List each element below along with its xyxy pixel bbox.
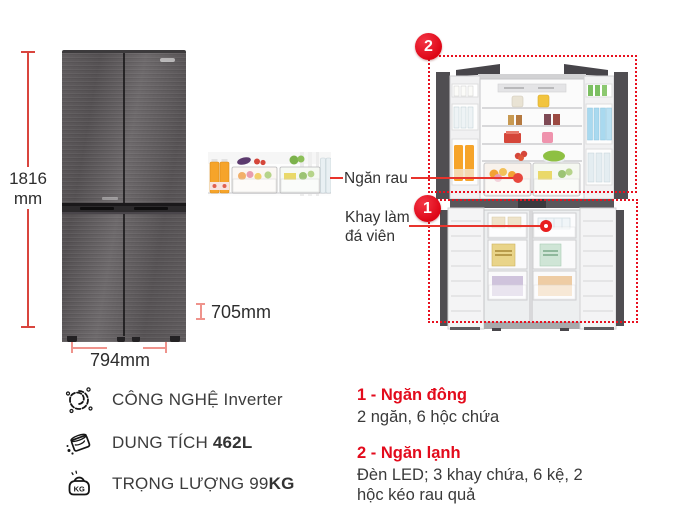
width-dimension-label: 794mm xyxy=(90,350,150,371)
door-handle xyxy=(134,207,168,210)
height-measure-line-upper xyxy=(27,53,29,167)
fridge-compartment-badge: 2 xyxy=(415,33,442,60)
legend-fridge-desc: Đèn LED; 3 khay chứa, 6 kệ, 2 hộc kéo ra… xyxy=(357,466,602,505)
vegetable-drawer-leader-right xyxy=(411,177,515,179)
height-value: 1816 xyxy=(4,169,52,189)
depth-dimension-label: 705mm xyxy=(211,302,271,323)
capacity-jug-icon xyxy=(62,426,96,460)
feature-weight: KG TRỌNG LƯỢNG 99KG xyxy=(62,466,295,502)
ice-tray-leader xyxy=(409,225,545,227)
door-seam xyxy=(123,53,125,336)
legend-freezer-desc: 2 ngăn, 6 hộc chứa xyxy=(357,408,602,427)
freezer-compartment-badge: 1 xyxy=(414,195,441,222)
legend-fridge: 2 - Ngăn lạnh Đèn LED; 3 khay chứa, 6 kệ… xyxy=(357,444,602,505)
feature-capacity: DUNG TÍCH 462L xyxy=(62,425,252,461)
inverter-mark xyxy=(102,197,118,200)
door-handle xyxy=(80,207,114,210)
compartment-legend: 1 - Ngăn đông 2 ngăn, 6 hộc chứa 2 - Ngă… xyxy=(357,386,602,522)
legend-freezer: 1 - Ngăn đông 2 ngăn, 6 hộc chứa xyxy=(357,386,602,427)
height-dimension-label: 1816 mm xyxy=(4,169,52,208)
ice-tray-marker xyxy=(540,220,552,232)
ice-tray-label: Khay làm đá viên xyxy=(345,209,410,246)
feature-text: CÔNG NGHỆ Inverter xyxy=(112,390,283,410)
vegetable-drawer-label: Ngăn rau xyxy=(344,170,408,189)
freezer-compartment-outline xyxy=(428,199,638,323)
brand-logo-icon xyxy=(160,58,175,62)
product-infographic: 1816 mm 705mm 794mm xyxy=(0,0,696,522)
feature-text: DUNG TÍCH 462L xyxy=(112,433,252,453)
weight-kg-icon: KG xyxy=(62,467,96,501)
legend-fridge-title: 2 - Ngăn lạnh xyxy=(357,444,602,463)
legend-freezer-title: 1 - Ngăn đông xyxy=(357,386,602,405)
height-measure-bottom-cap xyxy=(21,326,35,328)
closed-fridge-image xyxy=(62,50,186,342)
vegetable-drawer-marker xyxy=(513,173,523,183)
height-unit: mm xyxy=(4,189,52,209)
svg-text:KG: KG xyxy=(74,485,85,494)
feature-text: TRỌNG LƯỢNG 99KG xyxy=(112,474,295,494)
inverter-chip-icon xyxy=(62,383,96,417)
height-measure-line-lower xyxy=(27,209,29,326)
crisper-inset-image xyxy=(208,152,331,196)
vegetable-drawer-leader-left xyxy=(330,177,343,179)
feature-inverter: CÔNG NGHỆ Inverter xyxy=(62,382,283,418)
fridge-compartment-outline xyxy=(428,55,637,193)
